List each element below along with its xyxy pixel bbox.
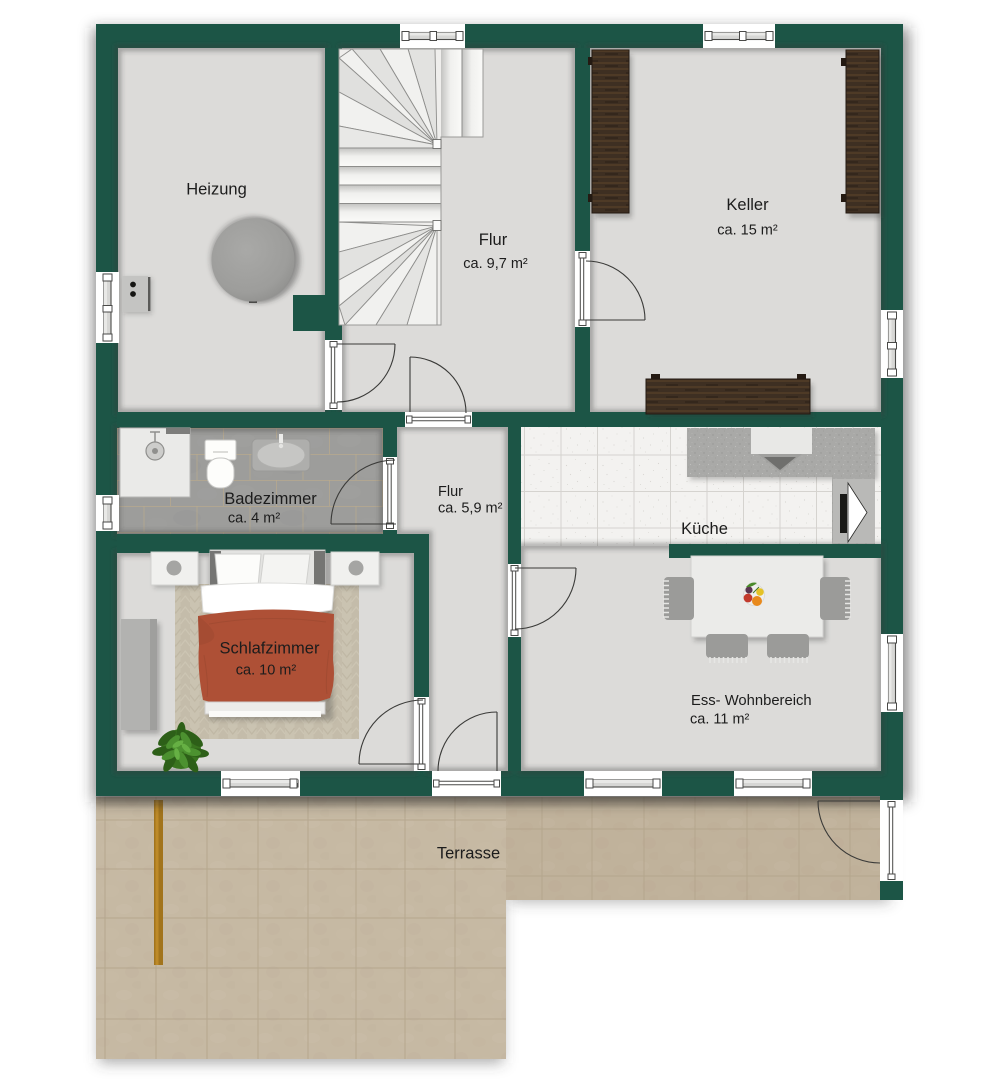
svg-text:Ess- Wohnbereich: Ess- Wohnbereich [691, 693, 812, 709]
svg-text:Flur: Flur [479, 231, 508, 249]
svg-text:Heizung: Heizung [186, 181, 247, 199]
svg-text:Badezimmer: Badezimmer [224, 490, 317, 508]
svg-text:Keller: Keller [726, 196, 769, 214]
svg-text:ca. 9,7 m²: ca. 9,7 m² [463, 256, 528, 272]
svg-text:ca. 11 m²: ca. 11 m² [690, 712, 750, 728]
svg-text:Terrasse: Terrasse [437, 845, 500, 863]
svg-text:ca. 4 m²: ca. 4 m² [228, 511, 281, 527]
svg-text:Küche: Küche [681, 520, 728, 538]
svg-text:ca. 15 m²: ca. 15 m² [717, 223, 778, 239]
svg-text:ca. 10 m²: ca. 10 m² [236, 663, 297, 679]
svg-text:ca. 5,9 m²: ca. 5,9 m² [438, 501, 503, 517]
svg-text:Schlafzimmer: Schlafzimmer [220, 640, 320, 658]
svg-text:Flur: Flur [438, 484, 463, 500]
